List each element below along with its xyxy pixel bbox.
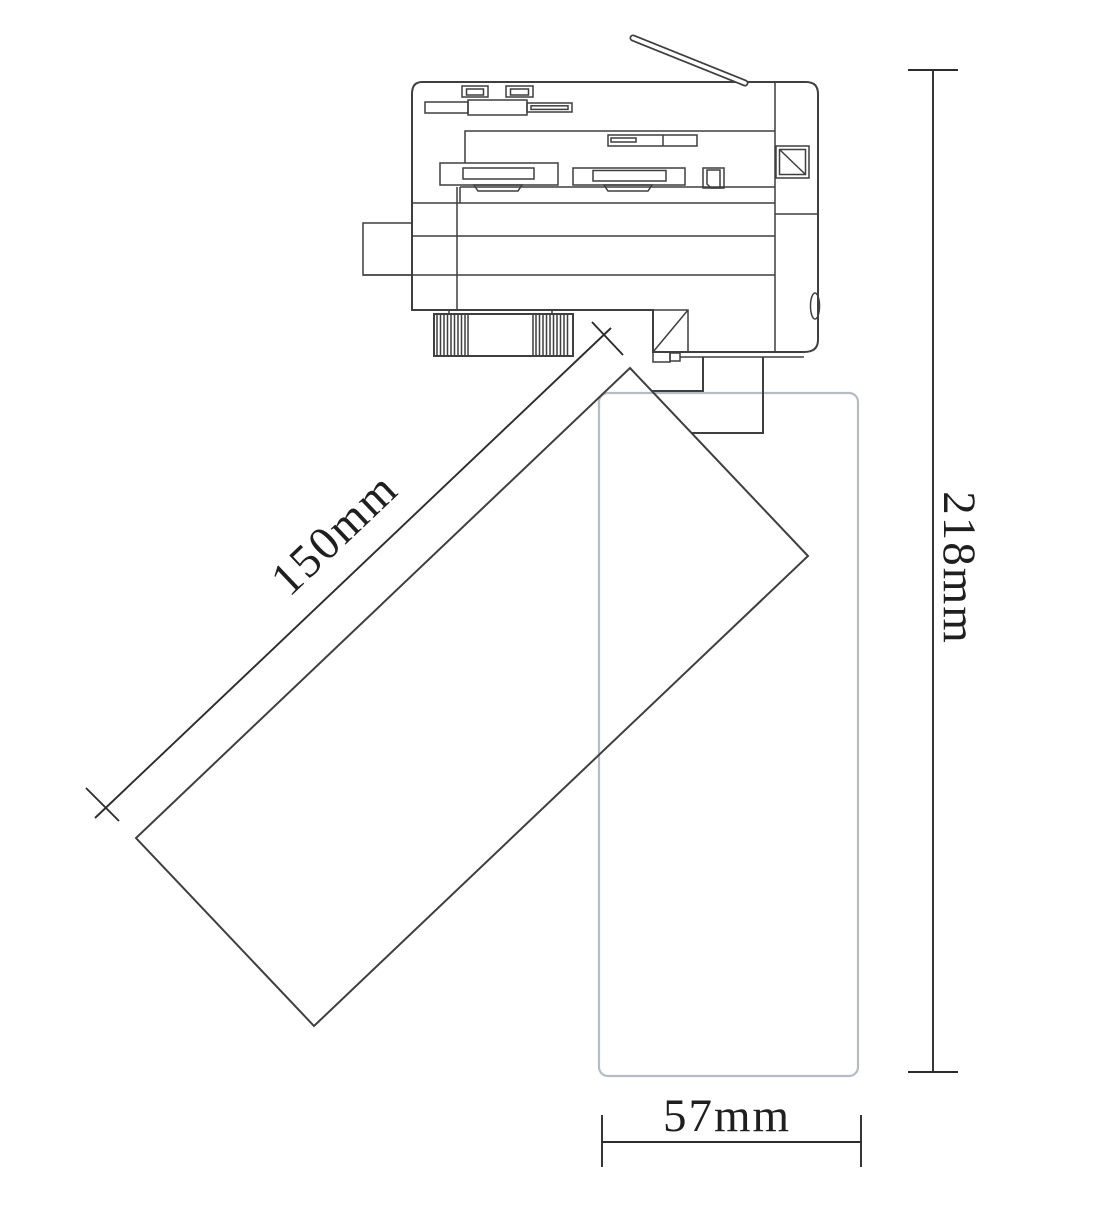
height-dim-label: 218mm (933, 491, 985, 645)
lamp-body-tilted-outline (136, 368, 808, 1026)
width-dim-label: 57mm (663, 1090, 791, 1142)
track-adapter (363, 38, 820, 433)
dimension-width: 57mm (602, 1090, 861, 1167)
left-protrusion (363, 223, 412, 275)
track-light-dimension-drawing: 150mm 218mm 57mm (0, 0, 1100, 1200)
length-dim-tick-top (592, 322, 623, 355)
length-dim-line (95, 328, 611, 818)
bottom-step (653, 352, 670, 362)
adapter-outer-body (412, 82, 818, 352)
length-dim-label: 150mm (261, 462, 408, 605)
dimension-length: 150mm (86, 322, 623, 821)
length-dim-tick-bottom (86, 788, 119, 821)
bottom-step-square (670, 353, 680, 361)
knob-ribs-left (437, 314, 465, 356)
dimension-height: 218mm (908, 70, 985, 1072)
technical-drawing-page: 150mm 218mm 57mm (0, 0, 1100, 1200)
lamp-vertical-ghost-outline (599, 393, 858, 1076)
release-lever-fill (633, 38, 745, 83)
